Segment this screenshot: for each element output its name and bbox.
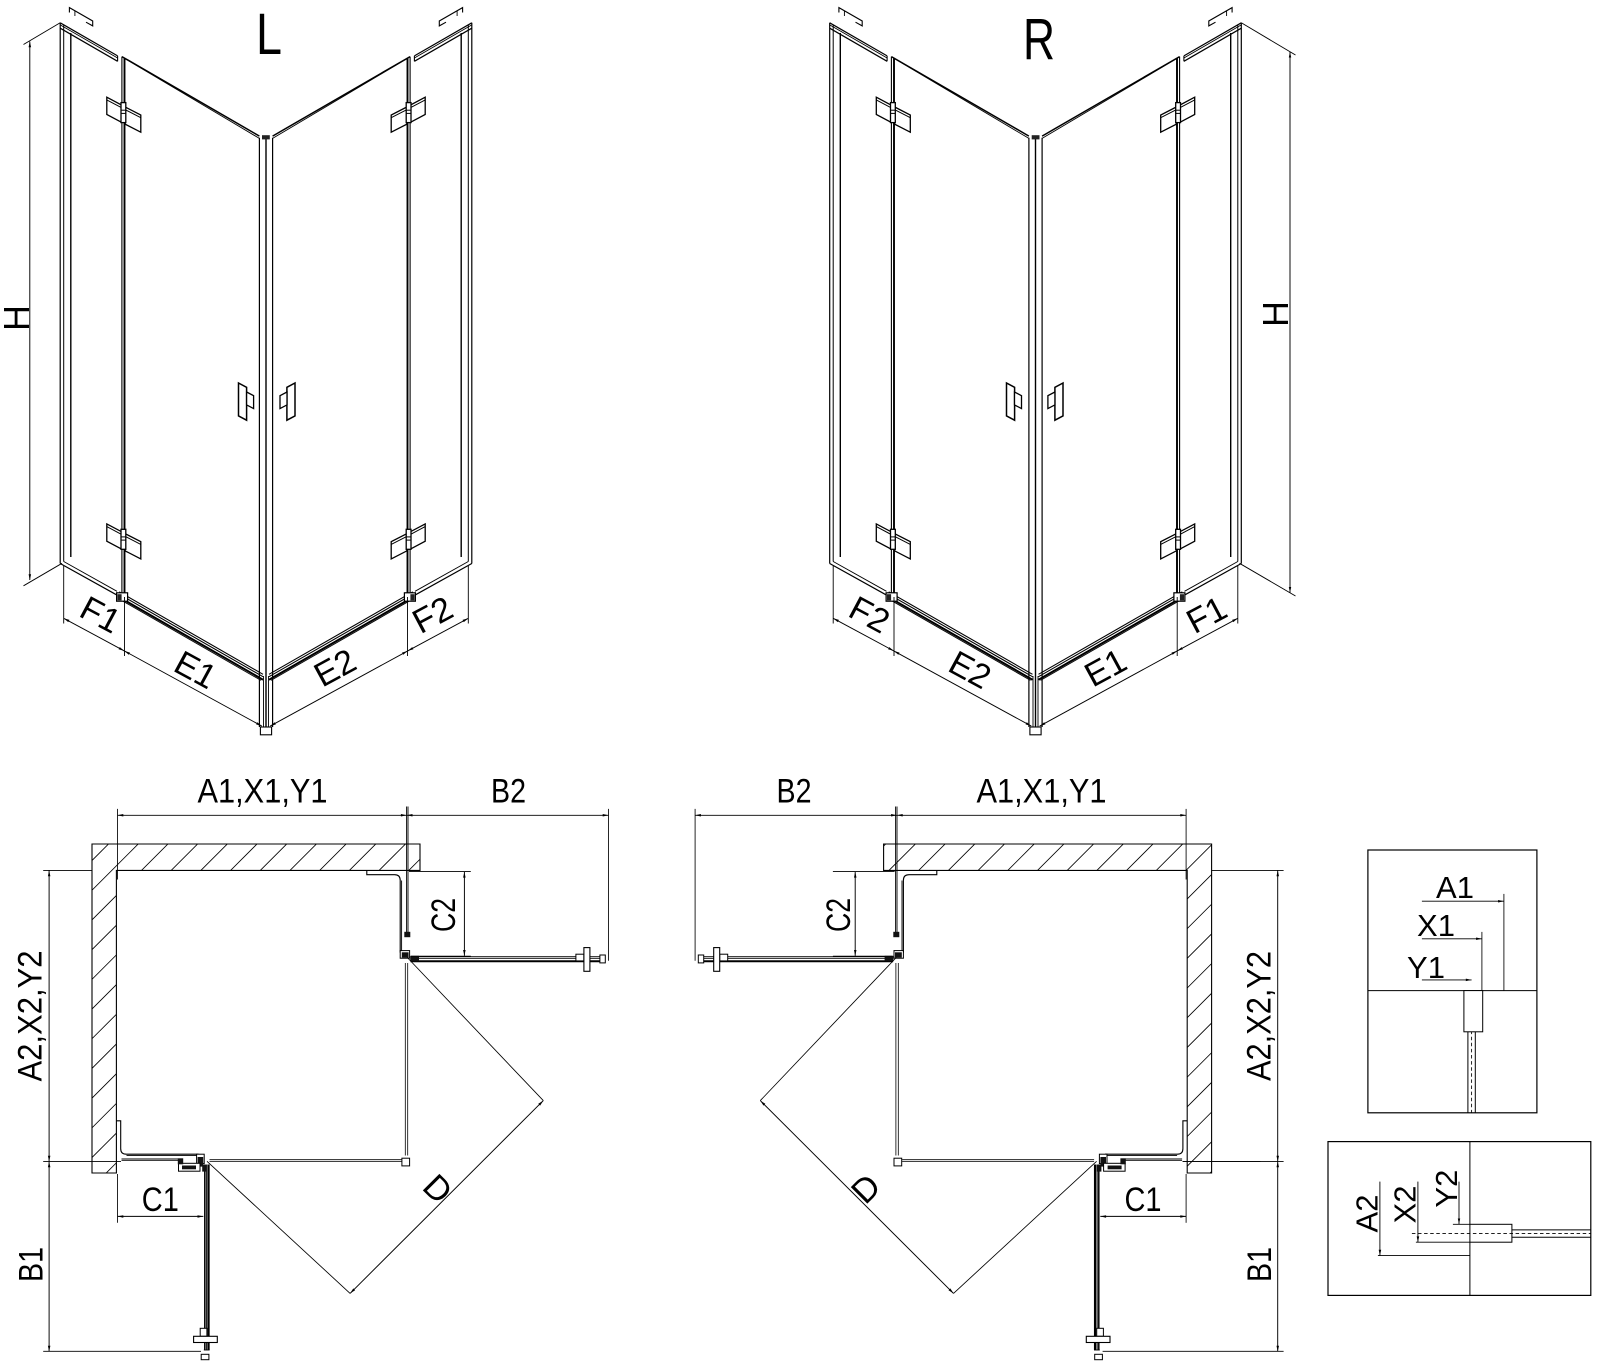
svg-text:A1,X1,Y1: A1,X1,Y1 bbox=[977, 773, 1107, 811]
svg-text:H: H bbox=[1255, 301, 1296, 327]
svg-text:Y2: Y2 bbox=[1429, 1170, 1464, 1208]
svg-text:A2,X2,Y2: A2,X2,Y2 bbox=[12, 951, 50, 1082]
svg-text:C2: C2 bbox=[820, 898, 858, 932]
svg-text:Y1: Y1 bbox=[1407, 950, 1445, 985]
svg-text:C1: C1 bbox=[1125, 1181, 1162, 1219]
svg-text:R: R bbox=[1023, 7, 1055, 72]
svg-text:B2: B2 bbox=[491, 773, 526, 811]
svg-text:A2,X2,Y2: A2,X2,Y2 bbox=[1241, 951, 1279, 1081]
svg-text:C2: C2 bbox=[425, 898, 463, 932]
svg-text:X1: X1 bbox=[1417, 908, 1455, 943]
svg-text:B2: B2 bbox=[777, 773, 812, 811]
svg-text:B1: B1 bbox=[1241, 1247, 1279, 1282]
svg-text:C1: C1 bbox=[142, 1181, 179, 1219]
svg-text:L: L bbox=[256, 2, 282, 67]
svg-text:H: H bbox=[0, 305, 37, 331]
svg-text:A1: A1 bbox=[1436, 870, 1474, 905]
svg-text:X2: X2 bbox=[1388, 1186, 1423, 1224]
svg-text:A2: A2 bbox=[1350, 1195, 1385, 1233]
svg-text:A1,X1,Y1: A1,X1,Y1 bbox=[198, 773, 328, 811]
svg-text:B1: B1 bbox=[13, 1247, 51, 1282]
